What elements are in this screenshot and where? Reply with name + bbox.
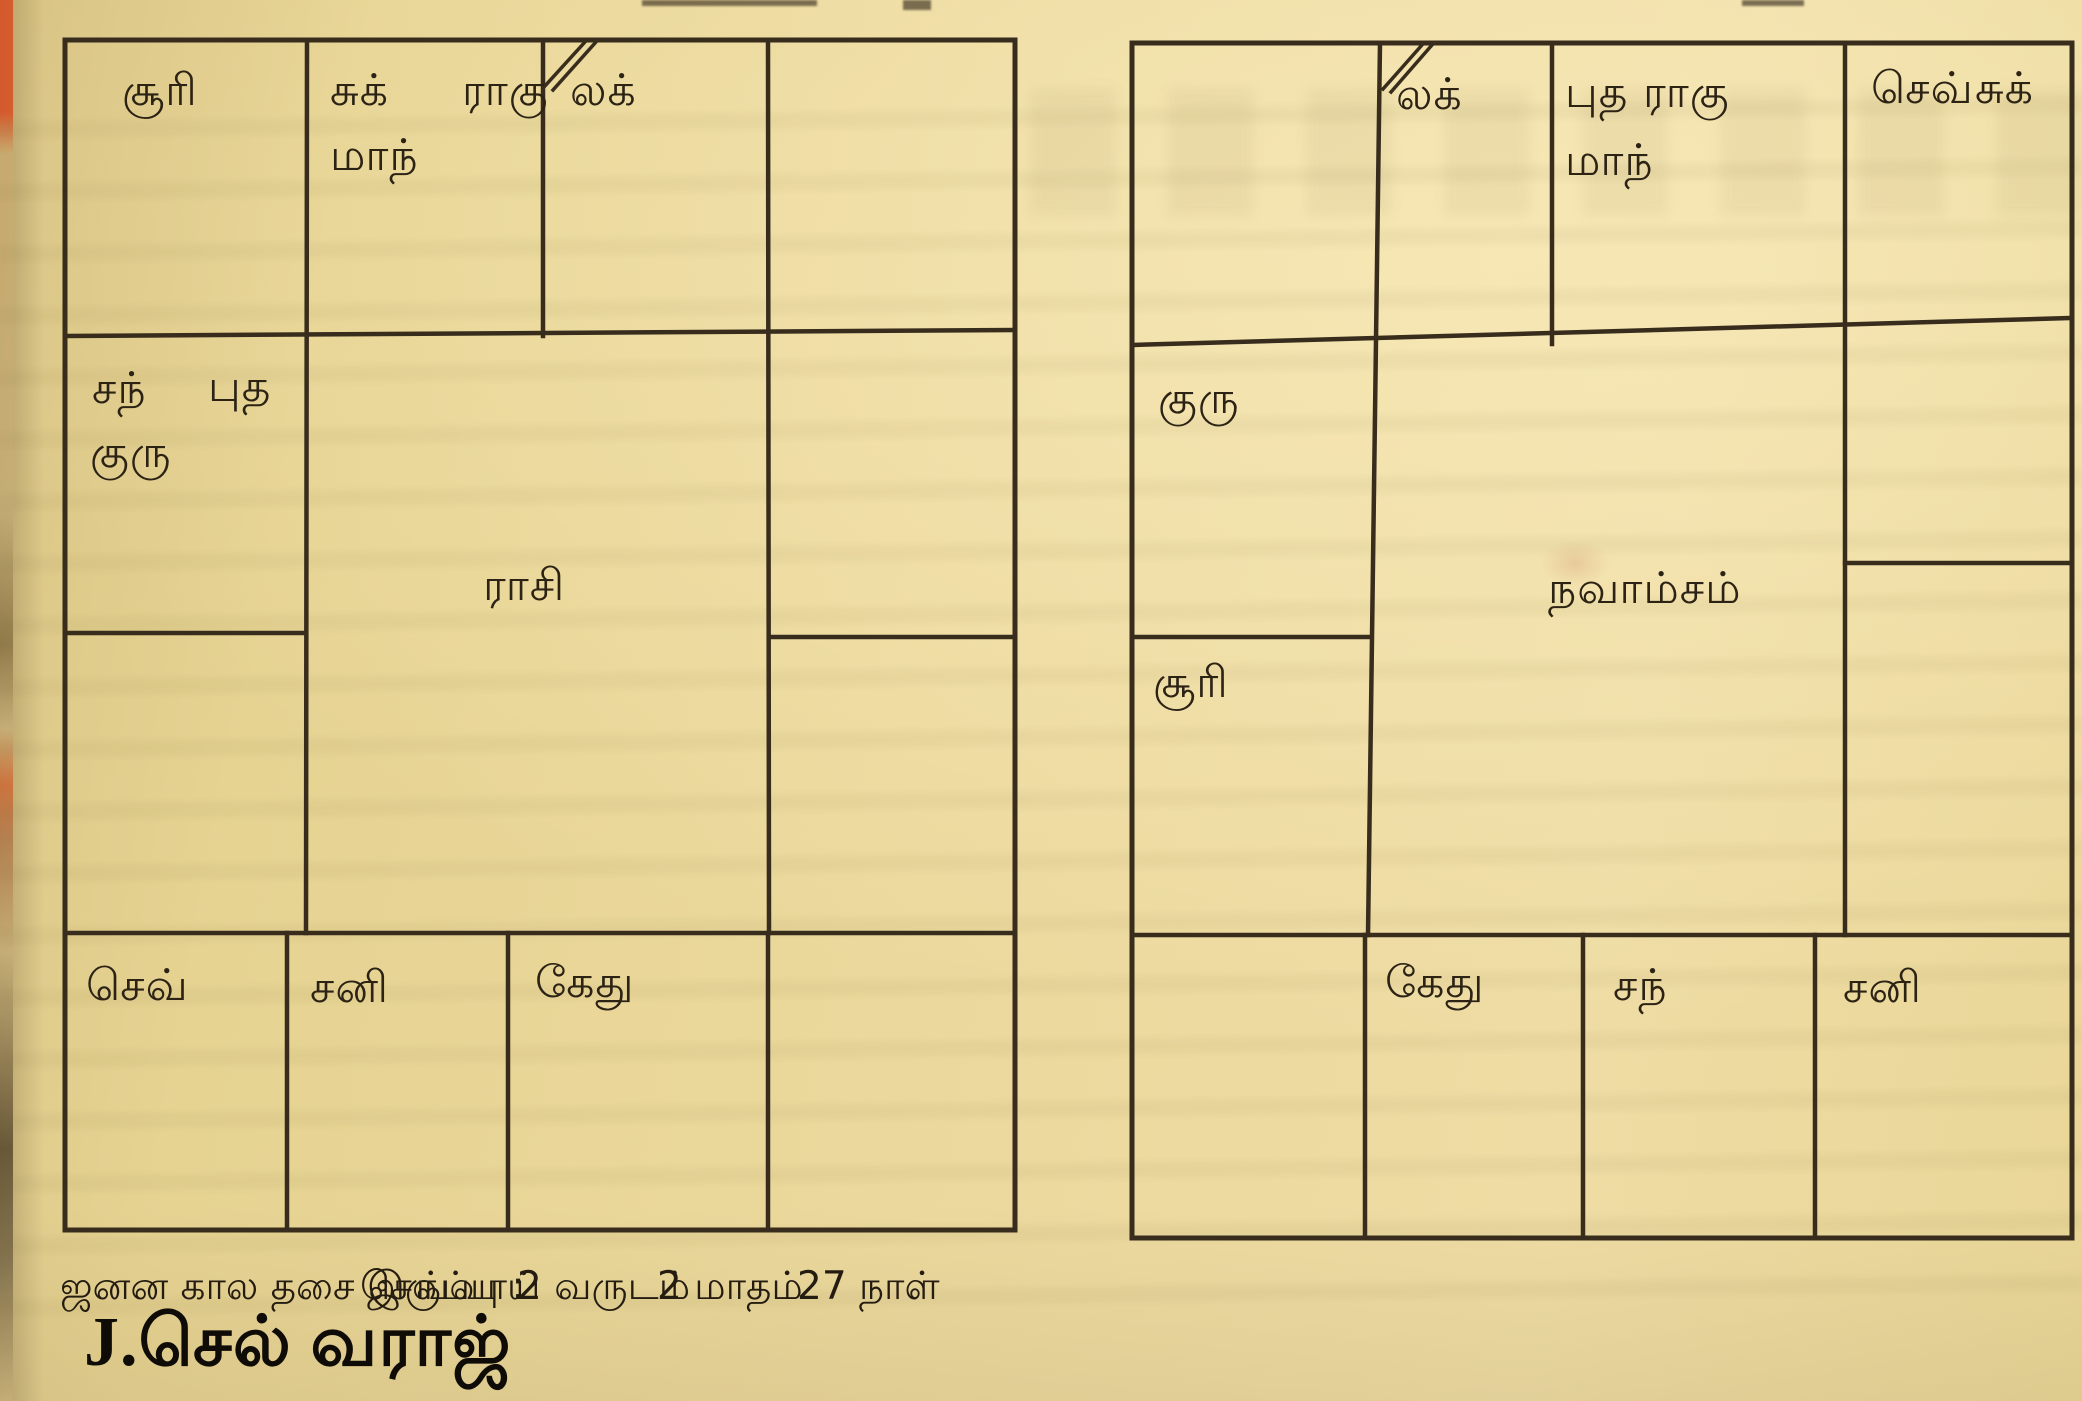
navamsam-mercury-label: புத bbox=[1565, 70, 1628, 116]
navamsam-mars-label: செவ் bbox=[1871, 66, 1974, 112]
navamsam-title: நவாம்சம் bbox=[1548, 566, 1742, 612]
bleedthrough-ghost-rows bbox=[0, 80, 2082, 1320]
rasi-mercury-label: புத bbox=[208, 364, 271, 410]
scan-left-edge-strip bbox=[0, 0, 13, 1401]
chart-grid-lines bbox=[0, 0, 2082, 1401]
rasi-lagna-label: லக் bbox=[570, 68, 637, 114]
navamsam-moon-label: சந் bbox=[1613, 963, 1668, 1009]
rasi-moon-label: சந் bbox=[92, 366, 147, 412]
navamsam-ketu-label: கேது bbox=[1385, 960, 1485, 1006]
scan-top-artifact bbox=[903, 0, 931, 10]
rasi-ketu-label: கேது bbox=[535, 960, 635, 1006]
navamsam-venus-label: சுக் bbox=[1975, 66, 2034, 112]
dasa-balance-months: 2 மாதம் bbox=[657, 1264, 803, 1314]
rasi-mandhi-label: மாந் bbox=[330, 133, 419, 179]
navamsam-sun-label: சூரி bbox=[1153, 660, 1229, 706]
scan-top-artifact bbox=[642, 0, 817, 6]
person-name: J.செல் வராஜ் bbox=[84, 1303, 511, 1391]
navamsam-jupiter-label: குரு bbox=[1158, 376, 1240, 422]
navamsam-saturn-label: சனி bbox=[1843, 965, 1922, 1011]
scan-top-artifact bbox=[1742, 0, 1804, 6]
navamsam-chart-frame bbox=[1132, 43, 2072, 1238]
navamsam-mandhi-label: மாந் bbox=[1565, 138, 1654, 184]
rasi-chart-frame bbox=[65, 40, 1015, 1230]
rasi-jupiter-label: குரு bbox=[90, 430, 172, 476]
scan-left-shadow bbox=[0, 0, 44, 1401]
scanned-horoscope-page: சூரி சுக் ராகு மாந் லக் சந் புத குரு ராச… bbox=[0, 0, 2082, 1401]
rasi-mars-label: செவ் bbox=[86, 963, 189, 1009]
rasi-venus-label: சுக் bbox=[330, 68, 389, 114]
navamsam-rahu-label: ராகு bbox=[1643, 70, 1730, 116]
rasi-saturn-label: சனி bbox=[310, 965, 389, 1011]
dasa-balance-days: 27 நாள் bbox=[797, 1264, 940, 1314]
rasi-sun-label: சூரி bbox=[122, 68, 198, 114]
navamsam-lagna-label: லக் bbox=[1396, 72, 1463, 118]
rasi-rahu-label: ராகு bbox=[462, 68, 549, 114]
rasi-title: ராசி bbox=[483, 563, 565, 609]
